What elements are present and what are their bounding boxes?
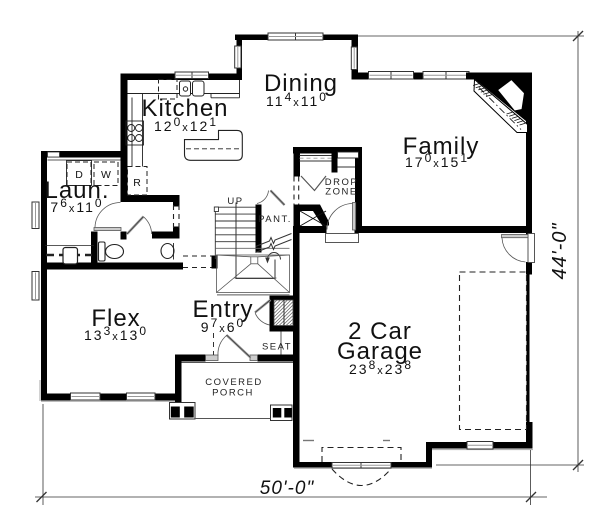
svg-text:50'-0": 50'-0" [260,478,315,499]
svg-text:SEAT: SEAT [262,342,292,353]
svg-text:ZONE: ZONE [325,187,357,198]
svg-text:R: R [133,177,141,189]
svg-text:PORCH: PORCH [212,388,254,399]
svg-text:44'-0": 44'-0" [549,223,571,280]
svg-text:COVERED: COVERED [205,377,262,388]
svg-text:UP: UP [227,196,243,207]
svg-text:PANT.: PANT. [258,214,292,225]
